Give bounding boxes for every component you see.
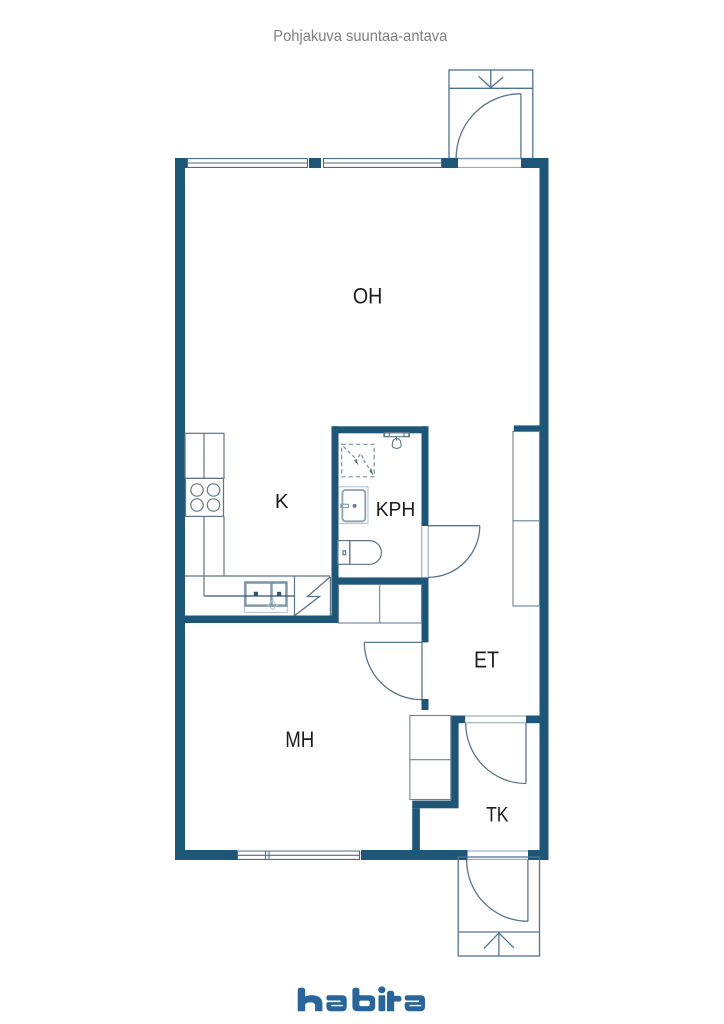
svg-text:Pohjakuva suuntaa-antava: Pohjakuva suuntaa-antava [273, 28, 447, 45]
svg-text:TK: TK [486, 803, 508, 826]
svg-text:OH: OH [353, 283, 383, 308]
svg-text:ET: ET [474, 646, 499, 672]
svg-text:K: K [275, 490, 289, 513]
svg-text:KPH: KPH [376, 499, 416, 521]
svg-text:MH: MH [285, 727, 314, 752]
